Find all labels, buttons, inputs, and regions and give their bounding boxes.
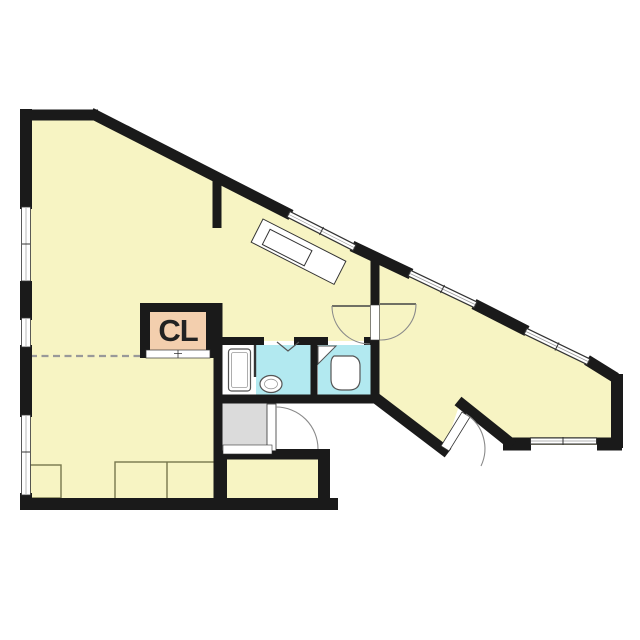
genkan-door-leaf <box>267 404 276 451</box>
window-bottom-right <box>530 437 597 445</box>
window-left-1 <box>22 207 31 281</box>
genkan-step <box>223 445 272 454</box>
floor-plan-image: CL <box>0 0 640 640</box>
floor-plan-canvas: CL <box>0 0 640 640</box>
door-opening <box>371 305 380 340</box>
closet-label: CL <box>158 313 197 348</box>
entrance-genkan <box>222 403 318 452</box>
window-left-2 <box>22 318 31 347</box>
genkan-floor <box>222 403 267 452</box>
closet-front <box>146 350 210 358</box>
window-left-3 <box>22 415 31 495</box>
washing-machine-pan-icon <box>229 349 251 391</box>
genkan-door-swing-arc <box>276 407 318 449</box>
water-area <box>222 341 375 399</box>
bath-sink-icon <box>260 376 282 393</box>
